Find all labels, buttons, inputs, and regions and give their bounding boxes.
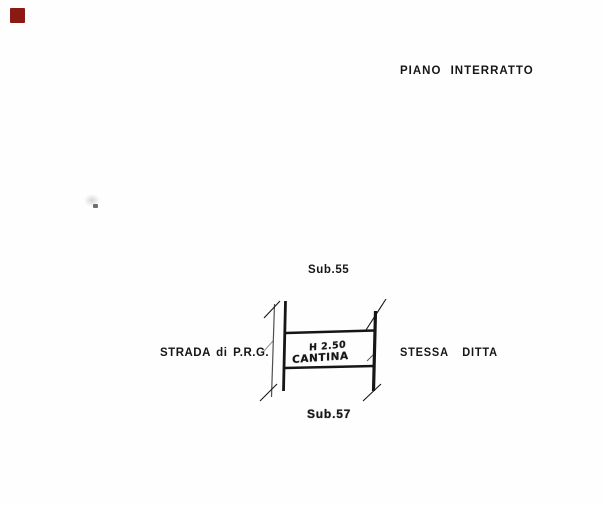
tick-bottom-right [363, 384, 381, 401]
plan-drawing [0, 0, 604, 505]
tick-right-wall-notch [367, 355, 373, 361]
right-wall-line [374, 311, 376, 391]
neighbor-label: STESSA DITTA [400, 347, 498, 360]
road-label: STRADA di P.R.G. [160, 347, 269, 360]
bottom-wall-line [285, 366, 374, 368]
top-wall-line [286, 331, 374, 334]
road-edge-outer-line [272, 304, 275, 397]
tick-bottom-left [260, 384, 277, 401]
sub-top-label: Sub.55 [308, 264, 349, 276]
scanned-plan-page: PIANO INTERRATTO H 2.50 CANTINA Sub.5 [0, 0, 604, 505]
left-wall-line [284, 301, 286, 391]
tick-top-left [264, 301, 280, 318]
sub-bottom-label: Sub.57 [307, 407, 351, 421]
